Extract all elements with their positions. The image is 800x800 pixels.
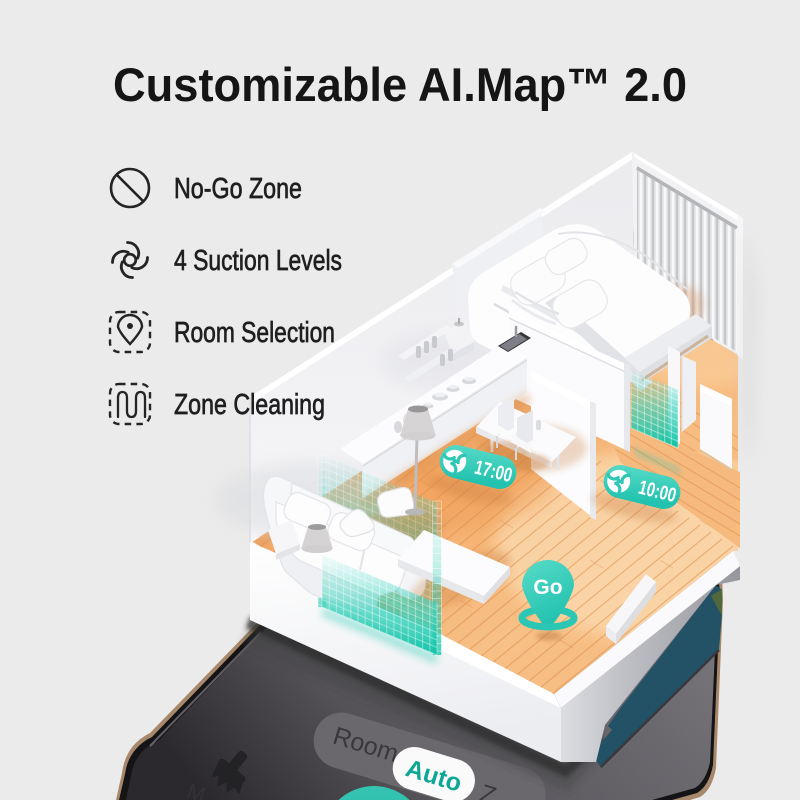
svg-text:4 Suction Levels: 4 Suction Levels — [174, 245, 342, 277]
svg-text:Customizable AI.Map™ 2.0: Customizable AI.Map™ 2.0 — [113, 58, 687, 111]
svg-text:Zone Cleaning: Zone Cleaning — [174, 389, 325, 421]
svg-text:Room Selection: Room Selection — [174, 317, 335, 349]
svg-text:Go: Go — [533, 576, 562, 599]
svg-text:No-Go Zone: No-Go Zone — [174, 173, 302, 205]
